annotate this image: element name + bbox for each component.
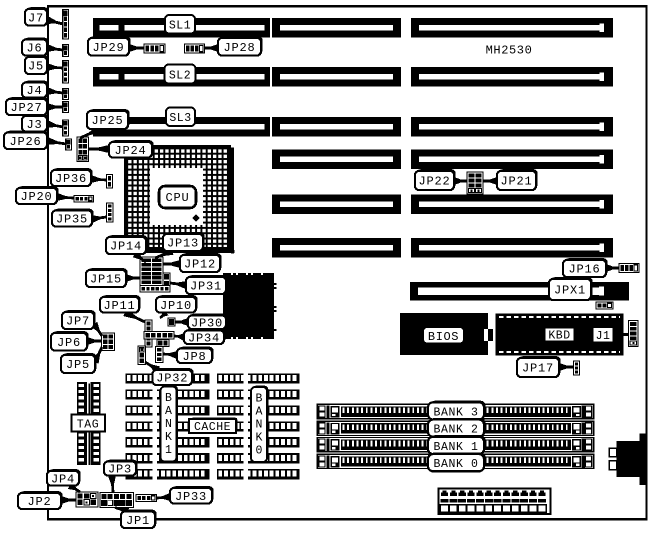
svg-text:JP5: JP5 xyxy=(66,358,90,372)
svg-text:JP8: JP8 xyxy=(182,350,206,364)
svg-text:J6: J6 xyxy=(26,42,42,56)
svg-text:BIOS: BIOS xyxy=(428,330,459,344)
svg-text:1: 1 xyxy=(165,444,172,457)
svg-text:JP11: JP11 xyxy=(103,299,135,313)
svg-text:B: B xyxy=(256,393,263,406)
svg-text:SL3: SL3 xyxy=(169,112,191,125)
svg-text:JP35: JP35 xyxy=(56,213,88,227)
svg-text:JP30: JP30 xyxy=(191,316,223,330)
svg-text:JP14: JP14 xyxy=(110,240,142,254)
svg-text:B: B xyxy=(165,392,172,405)
svg-text:JPX1: JPX1 xyxy=(554,284,586,298)
svg-text:JP16: JP16 xyxy=(568,263,600,277)
svg-text:J5: J5 xyxy=(28,60,44,74)
svg-text:J4: J4 xyxy=(26,84,42,98)
svg-text:BANK 2: BANK 2 xyxy=(433,424,478,437)
svg-text:JP31: JP31 xyxy=(190,280,222,294)
svg-text:JP28: JP28 xyxy=(223,41,255,55)
svg-text:JP12: JP12 xyxy=(184,258,216,272)
svg-text:JP1: JP1 xyxy=(126,514,150,528)
svg-text:MH2530: MH2530 xyxy=(486,44,533,58)
svg-text:BANK 0: BANK 0 xyxy=(433,458,478,471)
svg-text:J1: J1 xyxy=(596,330,611,343)
svg-text:K: K xyxy=(165,431,172,444)
svg-text:K: K xyxy=(256,432,263,445)
svg-text:JP32: JP32 xyxy=(156,372,188,386)
svg-text:JP3: JP3 xyxy=(108,463,132,477)
svg-text:J7: J7 xyxy=(28,11,44,25)
svg-text:JP29: JP29 xyxy=(92,41,124,55)
svg-text:N: N xyxy=(256,419,263,432)
svg-text:SL2: SL2 xyxy=(169,70,191,83)
svg-text:A: A xyxy=(256,406,263,419)
svg-text:JP26: JP26 xyxy=(9,135,41,149)
svg-text:JP20: JP20 xyxy=(20,190,52,204)
svg-text:JP24: JP24 xyxy=(114,144,146,158)
svg-text:J3: J3 xyxy=(26,118,42,132)
svg-text:JP36: JP36 xyxy=(55,172,87,186)
svg-text:KBD: KBD xyxy=(548,330,570,343)
svg-text:0: 0 xyxy=(256,445,263,458)
svg-text:SL1: SL1 xyxy=(169,20,191,33)
svg-text:BANK 3: BANK 3 xyxy=(433,406,478,419)
svg-text:JP6: JP6 xyxy=(57,336,81,350)
svg-text:CACHE: CACHE xyxy=(194,421,231,434)
svg-text:JP34: JP34 xyxy=(188,331,220,345)
svg-text:JP4: JP4 xyxy=(51,472,75,486)
svg-text:JP7: JP7 xyxy=(66,315,90,329)
svg-text:TAG: TAG xyxy=(77,419,100,432)
svg-text:JP27: JP27 xyxy=(10,101,42,115)
svg-text:N: N xyxy=(165,418,172,431)
svg-text:JP13: JP13 xyxy=(167,237,199,251)
svg-text:JP22: JP22 xyxy=(418,175,450,189)
svg-text:JP15: JP15 xyxy=(90,273,122,287)
svg-text:JP21: JP21 xyxy=(500,175,532,189)
svg-text:BANK 1: BANK 1 xyxy=(433,441,478,454)
svg-text:JP17: JP17 xyxy=(522,362,554,376)
svg-text:JP2: JP2 xyxy=(27,495,51,509)
svg-text:A: A xyxy=(165,405,172,418)
svg-text:JP10: JP10 xyxy=(160,299,192,313)
svg-text:CPU: CPU xyxy=(165,191,189,205)
svg-text:JP33: JP33 xyxy=(175,490,207,504)
svg-text:JP25: JP25 xyxy=(91,114,123,128)
